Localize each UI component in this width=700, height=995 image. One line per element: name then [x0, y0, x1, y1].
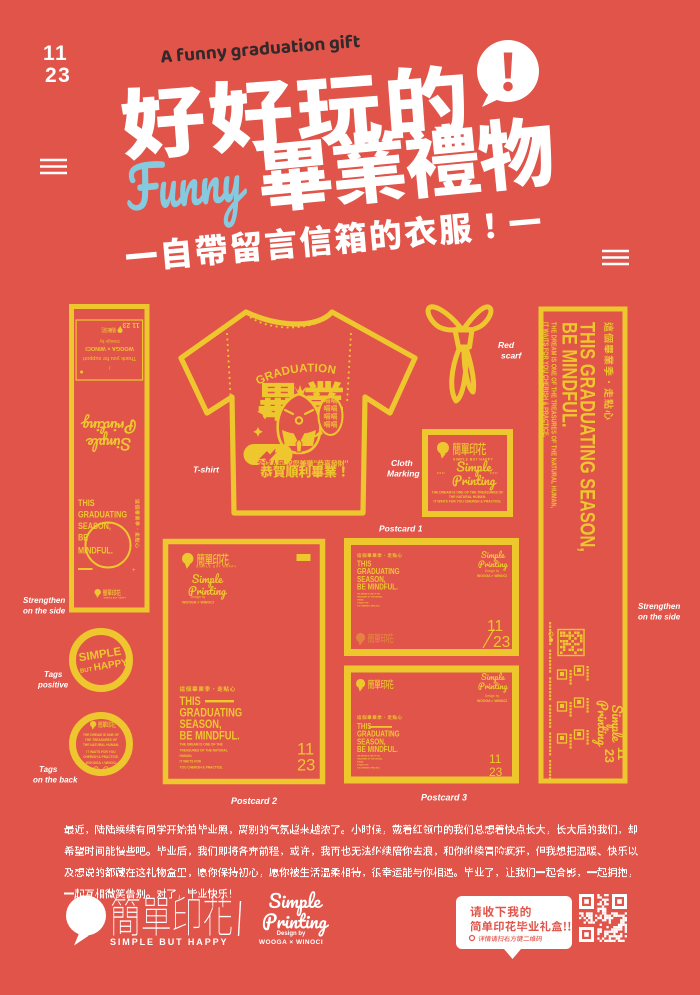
- svg-text:WOOGA × WINOCI: WOOGA × WINOCI: [85, 345, 134, 351]
- svg-text:IT WAITS FOR YOU: IT WAITS FOR YOU: [86, 750, 116, 754]
- svg-text:Design by: Design by: [191, 595, 206, 599]
- svg-text:Postcard 3: Postcard 3: [421, 793, 467, 803]
- svg-text:IT WAITS FOR YOU CHERISH & PRA: IT WAITS FOR YOU CHERISH & PRACTICE.: [541, 322, 549, 437]
- svg-text:SIMPLE BUT HAPPY: SIMPLE BUT HAPPY: [110, 937, 228, 947]
- svg-text:THE NATURAL HUMAN.: THE NATURAL HUMAN.: [83, 743, 119, 747]
- svg-text:WOOGA × WINOCI: WOOGA × WINOCI: [259, 939, 323, 946]
- svg-text:WOOGA × WINOCI: WOOGA × WINOCI: [182, 601, 214, 605]
- svg-text:THE DREAM IS ONE OF: THE DREAM IS ONE OF: [83, 733, 119, 737]
- svg-text:GRADUATING: GRADUATING: [78, 509, 127, 520]
- svg-text:11: 11: [487, 618, 503, 635]
- svg-text:+: +: [132, 568, 136, 574]
- svg-text:Postcard 2: Postcard 2: [231, 796, 277, 806]
- svg-text:11: 11: [489, 752, 502, 766]
- svg-text:THE DREAM IS ONE OF THE TREASU: THE DREAM IS ONE OF THE TREASURES OF: [432, 491, 503, 495]
- svg-text:T-shirt: T-shirt: [193, 465, 220, 475]
- svg-text:23: 23: [297, 757, 315, 775]
- svg-text:WOOGA × WINOCI: WOOGA × WINOCI: [477, 699, 507, 703]
- svg-text:WOOGA × WINOCI: WOOGA × WINOCI: [477, 574, 507, 578]
- svg-text:SIMPLE BUT HAPPY: SIMPLE BUT HAPPY: [453, 458, 494, 462]
- svg-text:23: 23: [45, 64, 71, 87]
- svg-text:Strengthenon the side: Strengthenon the side: [23, 596, 66, 616]
- svg-text:23: 23: [493, 634, 510, 651]
- svg-text:SIMPLE BUT HAPPY: SIMPLE BUT HAPPY: [104, 597, 127, 600]
- svg-text:THE NATURAL HUMAN.: THE NATURAL HUMAN.: [449, 495, 486, 499]
- svg-text:MINDFUL.: MINDFUL.: [78, 545, 113, 556]
- svg-text:Strengthenon the side: Strengthenon the side: [638, 602, 681, 622]
- svg-text:THE TREASURES OF: THE TREASURES OF: [85, 738, 117, 742]
- svg-text:Design by: Design by: [485, 569, 500, 573]
- svg-text:WOODGA × WINOCI: WOODGA × WINOCI: [86, 761, 117, 765]
- svg-text:THE DREAM IS ONE OF THE TREASU: THE DREAM IS ONE OF THE TREASURES OF THE…: [549, 322, 557, 508]
- svg-text:BE MINDFUL.: BE MINDFUL.: [558, 322, 581, 428]
- svg-text:11: 11: [615, 747, 629, 760]
- svg-text:Design by: Design by: [485, 694, 500, 698]
- svg-text:23: 23: [602, 749, 616, 763]
- svg-text:Design by: Design by: [277, 931, 306, 937]
- svg-text:CHERISH & PRACTICE.: CHERISH & PRACTICE.: [83, 755, 119, 759]
- svg-text:Thank you for support: Thank you for support: [82, 355, 136, 361]
- svg-text:11: 11: [43, 42, 68, 65]
- svg-text:11 23: 11 23: [122, 321, 139, 328]
- svg-text:Postcard 1: Postcard 1: [379, 524, 423, 534]
- svg-text:THIS: THIS: [78, 497, 95, 508]
- svg-text:23: 23: [489, 765, 503, 779]
- svg-text:SIMPLE BUT HAPPY: SIMPLE BUT HAPPY: [196, 565, 237, 569]
- svg-text:IT WAITS FOR YOU CHERISH & PRA: IT WAITS FOR YOU CHERISH & PRACTICE.: [434, 500, 502, 504]
- svg-text:Design by: Design by: [99, 339, 120, 344]
